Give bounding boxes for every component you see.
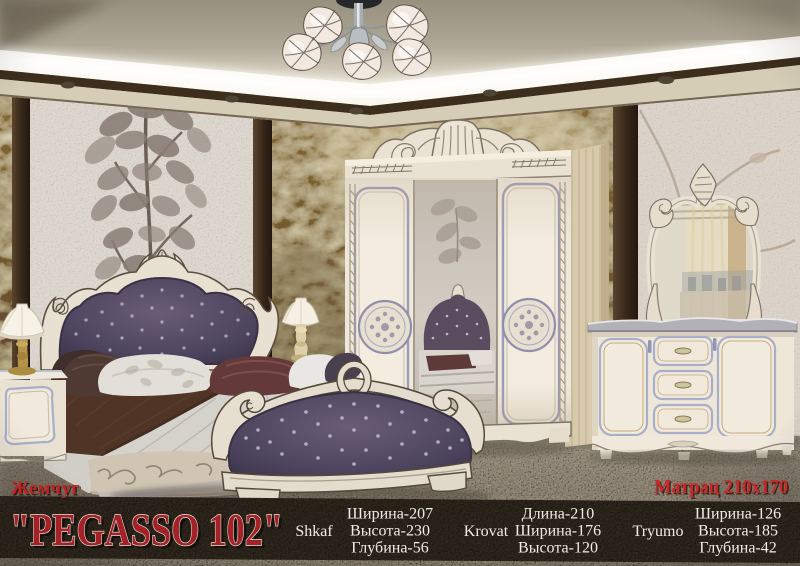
- svg-text:Жемчуг: Жемчуг: [11, 479, 80, 499]
- svg-text:Высота-230: Высота-230: [350, 523, 430, 540]
- svg-text:Krovat: Krovat: [464, 523, 509, 540]
- svg-text:"PEGASSO 102": "PEGASSO 102": [10, 504, 283, 555]
- svg-text:Глубина-56: Глубина-56: [351, 540, 429, 557]
- svg-text:Ширина-207: Ширина-207: [347, 506, 433, 523]
- svg-text:Высота-185: Высота-185: [698, 523, 778, 540]
- svg-text:Tryumo: Tryumo: [633, 523, 684, 540]
- svg-text:Ширина-126: Ширина-126: [695, 506, 781, 523]
- svg-text:Shkaf: Shkaf: [295, 523, 333, 540]
- svg-text:Глубина-42: Глубина-42: [699, 540, 777, 557]
- svg-text:Матрац 210x170: Матрац 210x170: [654, 477, 788, 498]
- svg-text:Ширина-176: Ширина-176: [515, 523, 601, 540]
- svg-text:Высота-120: Высота-120: [518, 540, 598, 557]
- svg-text:Длина-210: Длина-210: [522, 506, 594, 523]
